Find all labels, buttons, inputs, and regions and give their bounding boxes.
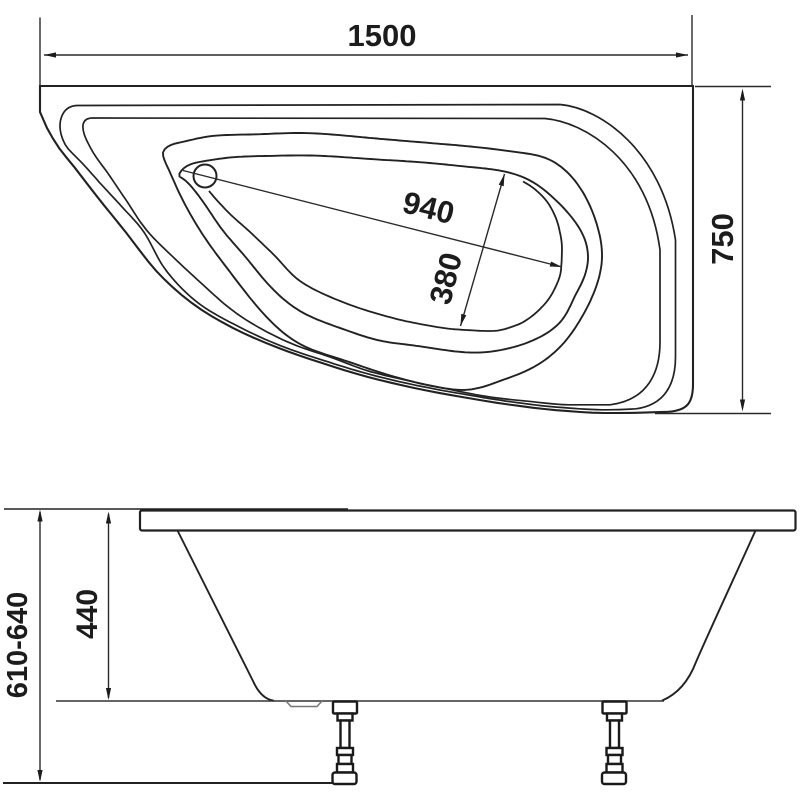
svg-text:380: 380: [423, 249, 469, 308]
svg-text:750: 750: [705, 213, 740, 265]
svg-text:610-640: 610-640: [2, 592, 34, 698]
svg-text:940: 940: [399, 185, 458, 231]
svg-text:440: 440: [71, 589, 104, 639]
svg-text:1500: 1500: [348, 18, 417, 53]
